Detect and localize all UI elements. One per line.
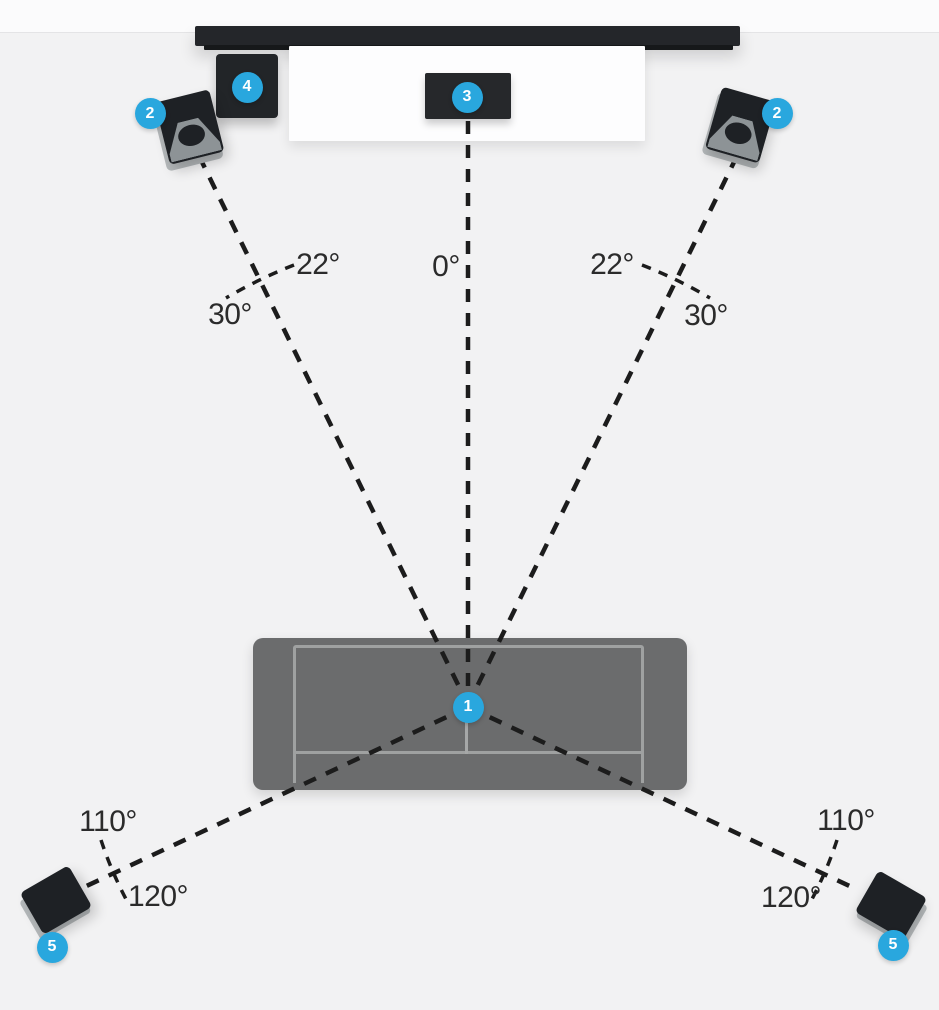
badge-listening-position: 1	[453, 692, 484, 723]
speaker-placement-diagram: 22° 30° 0° 22° 30° 110° 120° 110° 120° 2…	[0, 0, 939, 1010]
angle-label-front-left-22: 22°	[296, 248, 340, 282]
surround-left-speaker	[20, 865, 92, 935]
couch-armrest-line-right	[641, 751, 644, 783]
angle-label-center-0: 0°	[432, 250, 460, 284]
line-front-left	[199, 156, 468, 705]
couch-armrest-line-left	[293, 751, 296, 783]
speaker-angle-lines	[0, 0, 939, 1010]
arc-front-left	[226, 265, 294, 298]
angle-label-surround-left-120: 120°	[128, 880, 188, 914]
badge-subwoofer: 4	[232, 72, 263, 103]
angle-label-surround-left-110: 110°	[79, 805, 137, 839]
angle-label-front-right-30: 30°	[684, 299, 728, 333]
badge-front-left-speaker: 2	[135, 98, 166, 129]
badge-front-right-speaker: 2	[762, 98, 793, 129]
arc-surround-left	[101, 840, 127, 901]
angle-label-front-left-30: 30°	[208, 298, 252, 332]
speaker-body	[20, 865, 92, 935]
angle-label-surround-right-120: 120°	[761, 881, 821, 915]
tv-screen	[195, 26, 740, 46]
angle-label-front-right-22: 22°	[590, 248, 634, 282]
line-front-right	[468, 156, 737, 705]
angle-label-surround-right-110: 110°	[817, 804, 875, 838]
front-right-speaker	[704, 87, 777, 168]
front-left-speaker	[155, 89, 226, 169]
arc-front-right	[642, 265, 710, 298]
couch-cushion-divider	[465, 722, 468, 754]
badge-surround-left-speaker: 5	[37, 932, 68, 963]
badge-center-channel: 3	[452, 82, 483, 113]
badge-surround-right-speaker: 5	[878, 930, 909, 961]
